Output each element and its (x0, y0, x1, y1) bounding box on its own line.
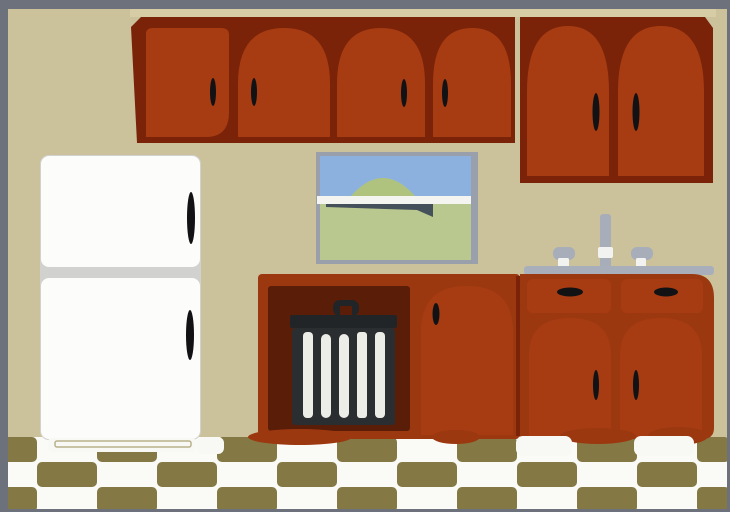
floor-tile (697, 487, 730, 512)
floor-tile (517, 462, 577, 487)
door-handle (433, 303, 440, 325)
cabinet-door (529, 318, 611, 437)
drawer-handle (557, 288, 583, 297)
cabinet-foot (516, 436, 572, 456)
trash-stripe (321, 334, 331, 418)
drawer-handle (654, 288, 678, 297)
floor-tile (457, 487, 517, 512)
door-handle (633, 93, 640, 131)
trash-can (290, 300, 397, 425)
floor-tile (577, 487, 637, 512)
cabinet-seam (516, 276, 520, 436)
upper-cabinets-left (131, 17, 515, 143)
floor-tile (637, 462, 697, 487)
floor-tile (157, 462, 217, 487)
floor-tile (97, 487, 157, 512)
border-top (0, 0, 730, 9)
cabinet-door (620, 318, 702, 437)
trash-handle-gap (340, 306, 352, 315)
window-sash (317, 196, 471, 204)
countertop (524, 266, 714, 275)
trash-stripe (357, 332, 367, 418)
floor-tile (277, 462, 337, 487)
floor-tile (397, 462, 457, 487)
floor-tile (217, 487, 277, 512)
cabinet-cornice (130, 9, 716, 17)
door-handle (593, 370, 599, 400)
cabinet-bottom-dip (432, 430, 480, 444)
window-field-pane (320, 204, 471, 260)
faucet (600, 214, 611, 268)
window (316, 152, 478, 264)
cabinet-foot (197, 437, 224, 454)
trash-stripe (339, 334, 349, 418)
border-left (0, 0, 8, 512)
cabinet-door (618, 26, 704, 176)
door-handle (210, 78, 216, 106)
cabinet-door (337, 28, 425, 137)
cabinet-bottom-dip (248, 429, 352, 445)
fridge-handle (187, 192, 195, 244)
fridge-kickplate (48, 438, 196, 452)
floor-tile (337, 487, 397, 512)
refrigerator (40, 155, 201, 452)
sink-base-cabinet (520, 274, 714, 439)
upper-cabinets-right (520, 17, 713, 183)
faucet-aerator (598, 247, 613, 258)
cabinet-door (146, 28, 229, 137)
fridge-handle (186, 310, 194, 360)
door-handle (251, 78, 257, 106)
door-handle (593, 93, 600, 131)
fridge-freezer-door (41, 156, 200, 267)
trash-stripe (303, 332, 313, 418)
trash-lid (290, 315, 397, 328)
door-handle (401, 79, 407, 107)
right-knob-base (636, 258, 646, 267)
kitchen-scene (0, 0, 730, 512)
cabinet-foot (634, 436, 694, 456)
trash-stripe (375, 332, 385, 418)
left-knob-base (558, 258, 569, 267)
floor-tile (37, 462, 97, 487)
fridge-lower-door (41, 278, 200, 439)
door-handle (442, 79, 448, 107)
door-handle (633, 370, 639, 400)
floor-tile (337, 437, 397, 462)
